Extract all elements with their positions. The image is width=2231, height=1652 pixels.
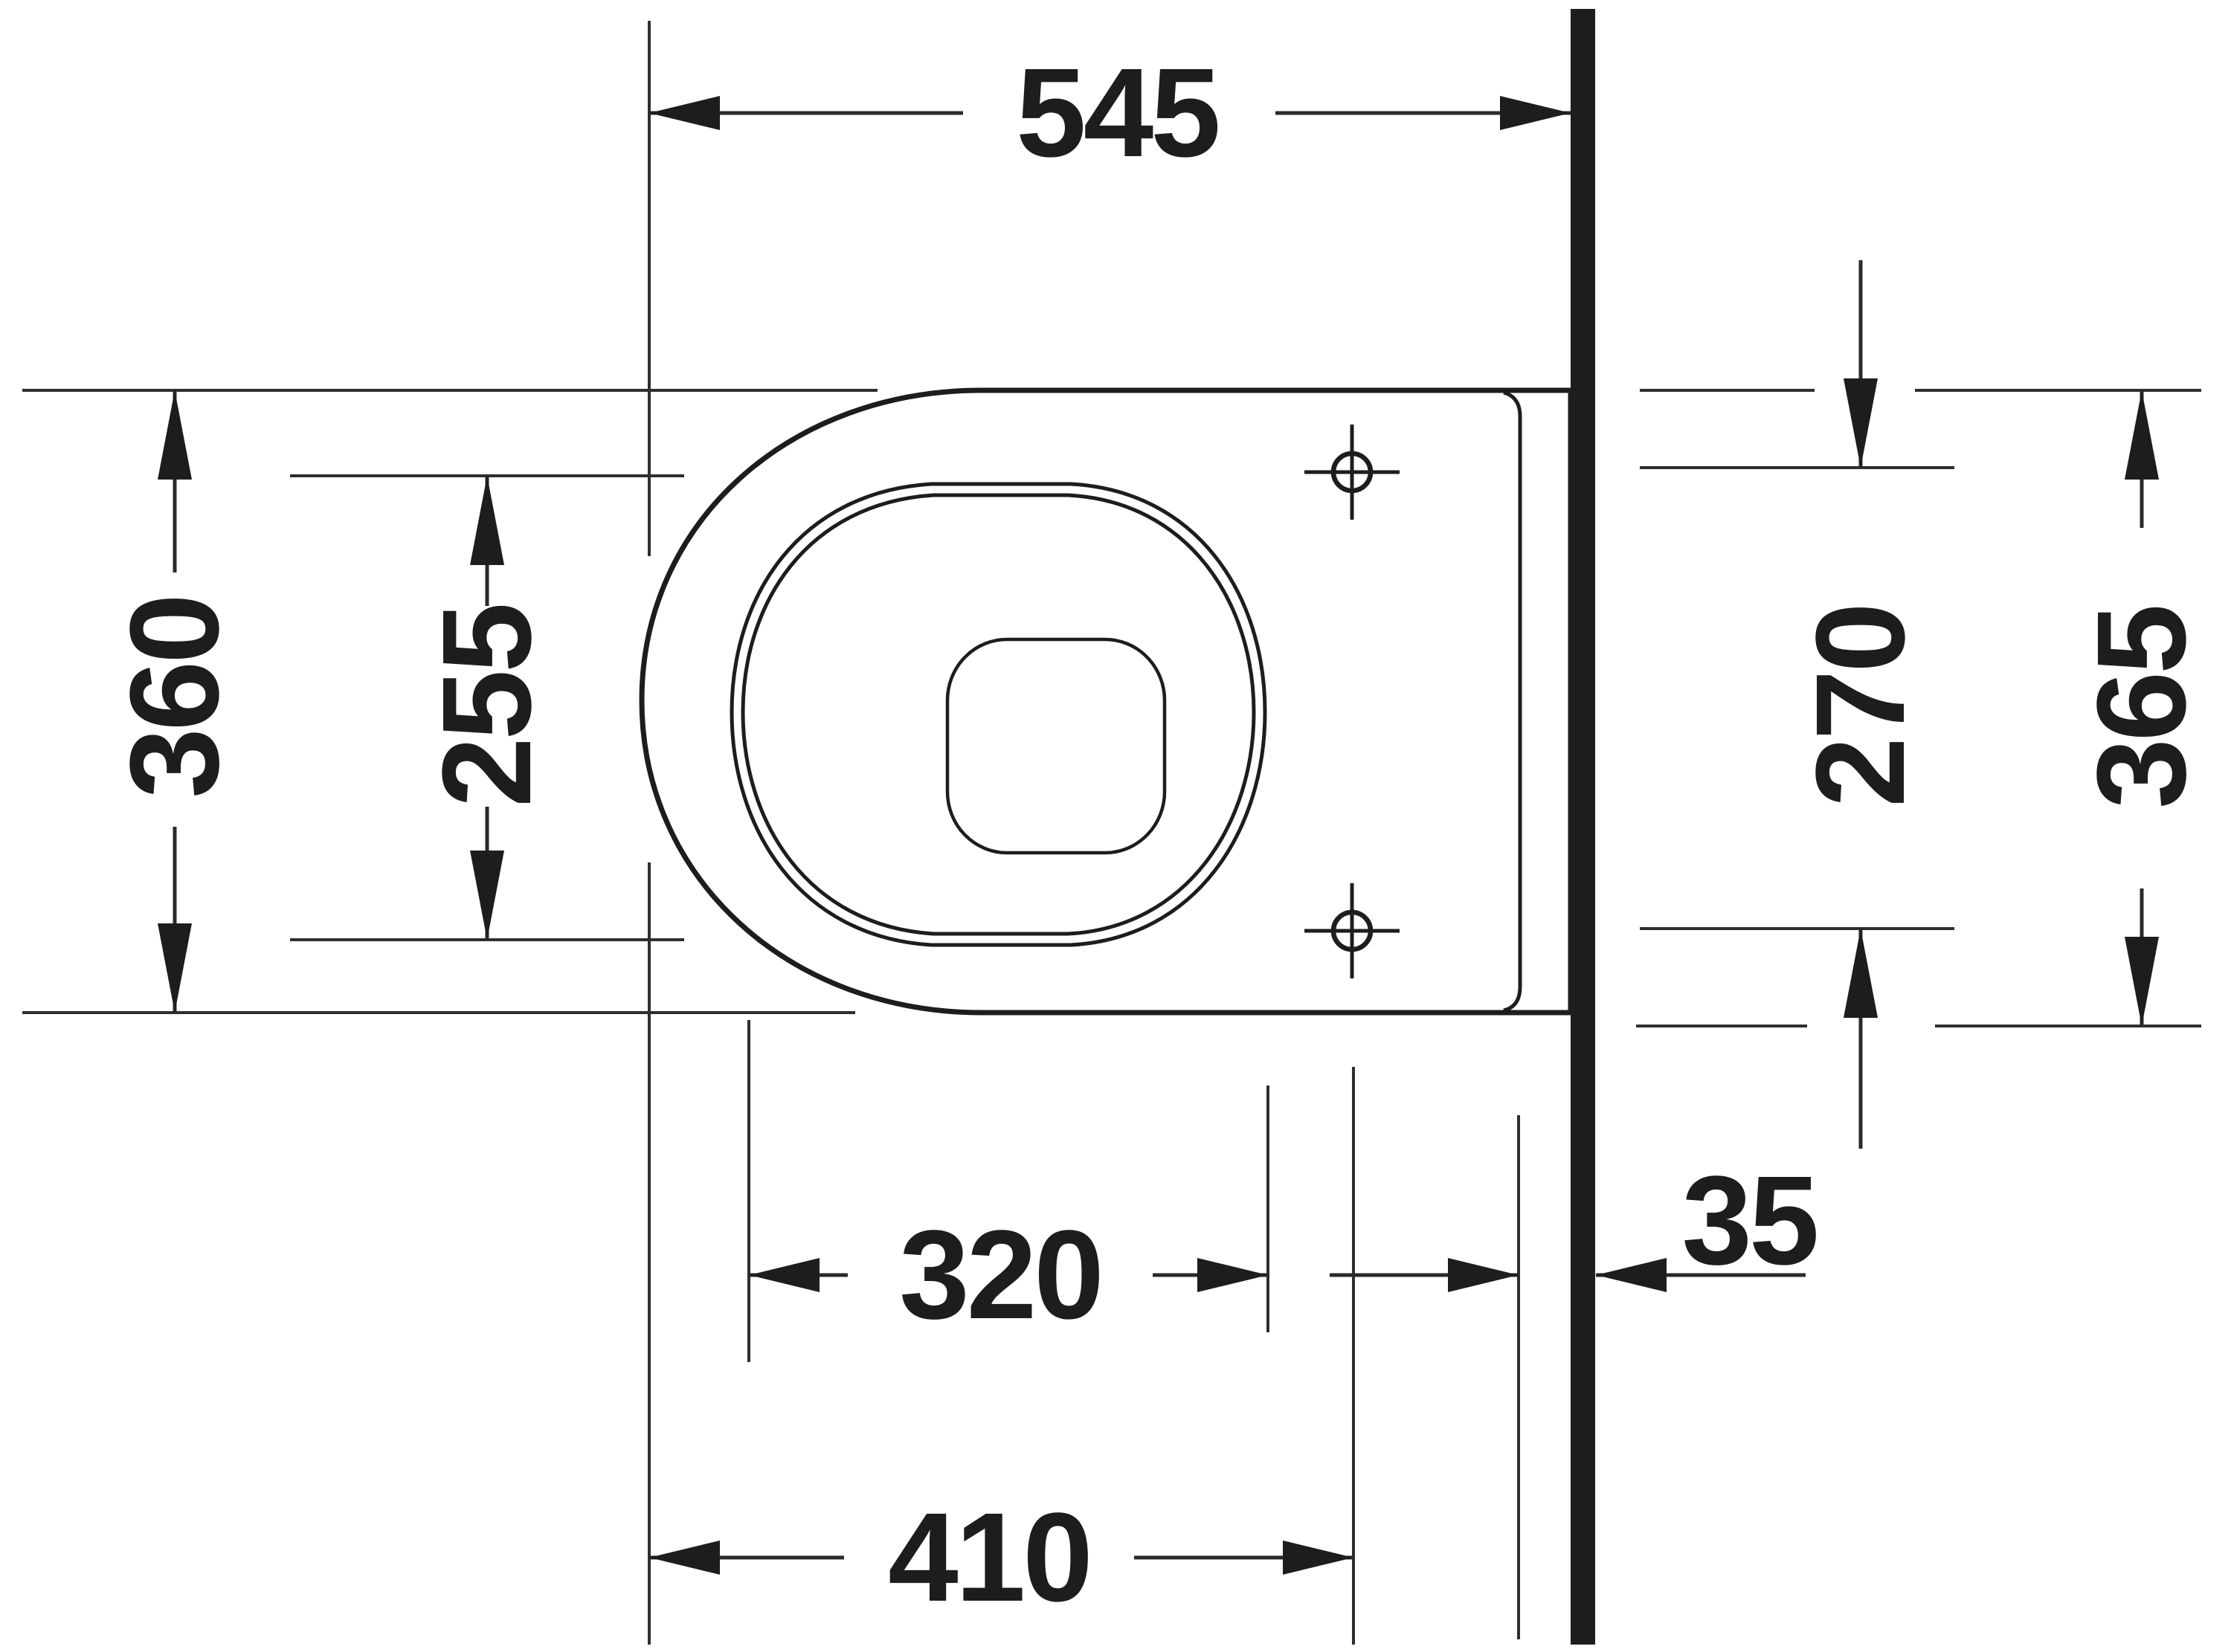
dim-opening-length-arrow-left: [749, 1258, 820, 1292]
dim-wall-offset-label: 35: [1681, 1150, 1816, 1291]
dim-hole-distance-arrow-left: [649, 1540, 720, 1575]
dim-opening-width: 255: [416, 476, 558, 940]
dim-opening-length-arrow-right: [1197, 1258, 1268, 1292]
sump-outline: [947, 639, 1165, 853]
dim-width-at-wall-arrow-bottom: [2125, 937, 2159, 1026]
dim-overall-depth-arrow-left: [649, 96, 720, 130]
dim-width-at-wall-arrow-top: [2125, 390, 2159, 480]
dim-bowl-width-arrow-top: [158, 390, 192, 480]
dim-opening-length: 320: [749, 1204, 1268, 1346]
dim-width-at-wall: 365: [2071, 390, 2212, 1026]
dim-hole-spacing-label: 270: [1790, 605, 1931, 807]
dim-opening-width-arrow-bottom: [470, 851, 504, 940]
dim-wall-offset-arrow-left: [1448, 1258, 1519, 1292]
dim-bowl-width-arrow-bottom: [158, 923, 192, 1013]
wall-line: [1571, 9, 1595, 1645]
dim-opening-length-label: 320: [899, 1204, 1101, 1346]
dim-overall-depth-arrow-right: [1500, 96, 1571, 130]
technical-drawing-page: 545 360 255 270 365 320: [0, 0, 2231, 1652]
dim-hole-distance-arrow-right: [1283, 1540, 1353, 1575]
dim-bowl-width-label: 360: [104, 596, 245, 798]
toilet-plan-drawing: 545 360 255 270 365 320: [0, 0, 2231, 1652]
dim-hole-spacing-arrow-top: [1844, 378, 1878, 468]
dim-opening-width-arrow-top: [470, 476, 504, 565]
dim-overall-depth-label: 545: [1016, 42, 1218, 184]
dim-opening-width-label: 255: [416, 605, 558, 807]
dim-overall-depth: 545: [649, 42, 1571, 184]
dim-fixing-hole-distance: 410: [649, 1487, 1353, 1628]
dim-hole-distance-label: 410: [888, 1487, 1090, 1628]
dim-hole-spacing-arrow-bottom: [1844, 929, 1878, 1018]
dim-wall-offset-arrow-right: [1596, 1258, 1667, 1292]
dim-fixing-hole-spacing: 270: [1790, 260, 1931, 1149]
toilet-body: [642, 390, 1571, 1013]
dim-width-at-wall-label: 365: [2071, 607, 2212, 809]
dim-bowl-width: 360: [104, 390, 245, 1013]
